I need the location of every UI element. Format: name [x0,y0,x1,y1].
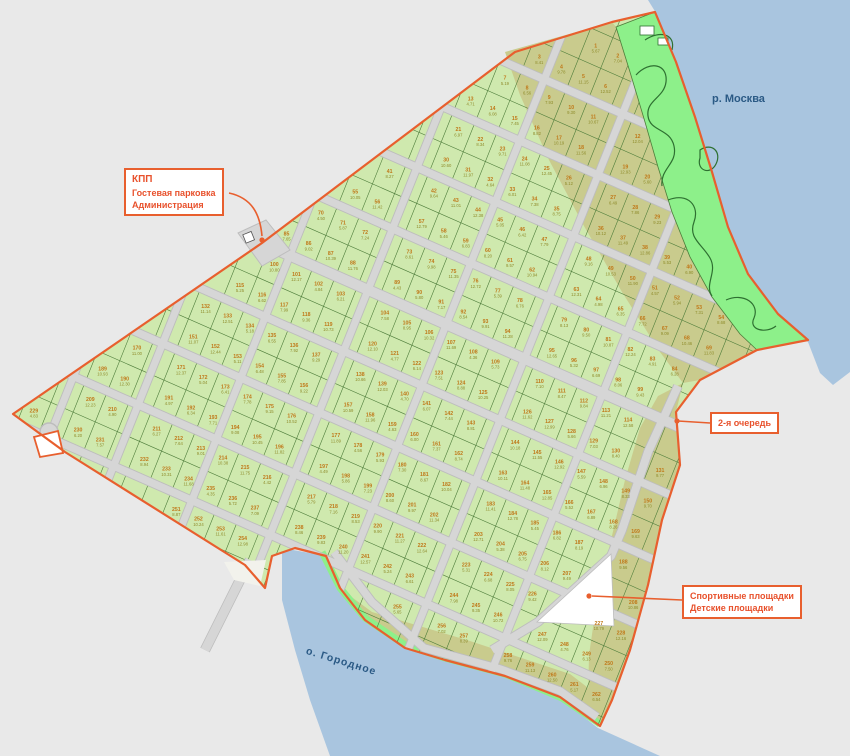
plot-area: 7.09 [251,511,260,516]
plot-area: 8.67 [420,477,429,482]
plot-area: 7.98 [450,598,459,603]
plot-area: 10.31 [161,472,172,477]
plot-area: 9.30 [567,110,576,115]
plot-area: 10.60 [441,163,452,168]
plot-area: 10.32 [424,335,435,340]
plot-area: 6.61 [406,579,415,584]
plot-area: 9.42 [528,597,537,602]
plot-area: 6.89 [587,515,596,520]
plot-area: 4.57 [651,291,660,296]
plot-area: 8.75 [553,212,562,217]
plot-area: 4.76 [560,647,569,652]
plot-area: 8.20 [484,253,493,258]
plot-area: 9.50 [582,333,591,338]
callout-kpp-line1: КПП [132,173,216,187]
plot-area: 10.46 [682,341,693,346]
plot-area: 6.49 [609,200,618,205]
plot-area: 9.29 [312,358,321,363]
plot-area: 7.64 [175,441,184,446]
plot-area: 6.42 [518,232,527,237]
plot-area: 5.04 [199,380,208,385]
plot-area: 9.71 [498,152,507,157]
plot-area: 5.38 [496,547,505,552]
plot-area: 7.71 [209,420,218,425]
plot-area: 8.94 [140,462,149,467]
plot-area: 7.79 [540,242,549,247]
plot-area: 4.83 [30,413,39,418]
plot-area: 10.38 [218,461,229,466]
plot-area: 9.16 [585,262,594,267]
plot-area: 11.42 [372,205,383,210]
plot-area: 11.68 [184,482,195,487]
plot-area: 5.32 [570,363,579,368]
callout-kpp-line2: Гостевая парковка [132,187,216,199]
callout-playgrounds: Спортивные площадки Детские площадки [682,585,802,619]
plot-area: 9.43 [636,392,645,397]
plot-area: 4.64 [486,182,495,187]
plot-area: 12.64 [417,548,428,553]
plot-area: 6.56 [523,90,532,95]
plot-area: 8.40 [612,454,621,459]
plot-area: 9.23 [653,220,662,225]
plot-area: 5.39 [494,294,503,299]
plot-area: 8.33 [622,494,631,499]
plot-area: 11.01 [451,203,462,208]
plot-area: 10.19 [554,141,565,146]
plot-area: 12.52 [600,89,611,94]
plot-area: 5.73 [491,365,500,370]
plot-area: 6.83 [462,244,471,249]
plot-area: 5.31 [462,568,471,573]
plot-area: 11.34 [429,518,440,523]
plot-area: 7.92 [290,348,299,353]
plot-area: 10.12 [596,231,607,236]
plot-area: 11.21 [601,413,612,418]
callout-phase2: 2-я очередь [710,412,779,434]
callout-playgrounds-line1: Спортивные площадки [690,590,794,602]
plot-area: 8.61 [405,255,414,260]
plot-area: 12.71 [473,537,484,542]
plot-area: 9.63 [631,534,640,539]
plot-area: 9.01 [197,451,206,456]
plot-area: 11.97 [463,173,474,178]
plot-area: 6.41 [221,390,230,395]
plot-area: 7.65 [282,237,291,242]
plot-area: 6.68 [484,577,493,582]
plot-area: 6.82 [553,536,562,541]
plot-area: 10.67 [588,120,599,125]
plot-area: 7.37 [432,447,441,452]
plot-area: 9.91 [481,324,490,329]
plot-area: 11.15 [578,79,589,84]
plot-area: 11.41 [486,506,497,511]
plot-area: 5.59 [577,474,586,479]
plot-area: 7.78 [243,399,252,404]
plot-area: 12.85 [542,495,553,500]
plot-area: 11.90 [628,281,639,286]
plot-area: 9.84 [580,403,589,408]
plot-area: 4.90 [108,412,117,417]
plot-area: 7.51 [435,376,444,381]
plot-area: 6.48 [256,369,265,374]
plot-area: 8.87 [172,512,181,517]
plot-area: 7.03 [590,444,599,449]
plot-area: 4.56 [354,448,363,453]
plot-area: 6.75 [519,557,528,562]
park-structure [640,26,654,35]
plot-area: 12.10 [367,347,378,352]
plan-svg: 15.6727.0438.4149.78511.15612.5275.1986.… [0,0,850,756]
plot-area: 5.93 [376,458,385,463]
plot-area: 11.75 [240,470,251,475]
plot-area: 5.24 [384,569,393,574]
plot-area: 12.31 [571,292,582,297]
plot-area: 12.16 [616,636,627,641]
leader-dot-kpp [259,237,264,242]
plot-area: 9.90 [374,529,383,534]
plot-area: 12.09 [537,637,548,642]
plot-area: 5.19 [501,81,510,86]
plot-area: 10.53 [605,271,616,276]
plot-area: 12.57 [360,559,371,564]
plot-area: 4.77 [391,356,400,361]
plot-area: 10.24 [193,522,204,527]
site-plan-map: 15.6727.0438.4149.78511.15612.5275.1986.… [0,0,850,756]
plot-area: 9.77 [656,473,665,478]
plot-area: 12.23 [85,402,96,407]
plot-area: 5.72 [229,501,238,506]
plot-area: 11.27 [395,539,406,544]
plot-area: 12.17 [291,277,302,282]
plot-area: 4.42 [263,480,272,485]
plot-area: 11.14 [201,309,212,314]
plot-area: 12.24 [625,352,636,357]
plot-area: 12.03 [377,387,388,392]
plot-area: 11.07 [188,340,199,345]
plot-area: 6.14 [413,366,422,371]
plot-area: 10.79 [594,626,605,631]
plot-area: 8.68 [717,320,726,325]
plot-area: 10.93 [97,372,108,377]
plot-area: 10.05 [350,195,361,200]
plot-area: 4.36 [469,355,478,360]
plot-area: 9.57 [506,263,515,268]
plot-area: 5.25 [236,288,245,293]
plot-area: 12.30 [119,381,130,386]
plot-area: 10.80 [269,267,280,272]
plot-area: 8.06 [614,383,623,388]
leader-dot-phase2 [674,418,679,423]
plot-area: 8.41 [535,60,544,65]
plot-area: 8.60 [386,498,395,503]
plot-area: 6.20 [74,433,83,438]
plot-area: 12.72 [470,284,481,289]
plot-area: 9.49 [563,576,572,581]
river-label: р. Москва [712,93,765,105]
callout-kpp: КПП Гостевая парковка Администрация [124,168,224,216]
plot-area: 5.65 [393,609,402,614]
plot-area: 9.64 [430,193,439,198]
plot-area: 8.47 [558,394,567,399]
plot-area: 7.50 [605,666,614,671]
plot-area: 11.83 [704,351,715,356]
plot-area: 7.86 [631,210,640,215]
plot-area: 8.19 [575,545,584,550]
plot-area: 12.79 [416,224,427,229]
plot-area: 6.62 [258,298,267,303]
plot-area: 5.66 [568,434,577,439]
plot-area: 12.93 [620,170,631,175]
plot-area: 5.18 [246,329,255,334]
plot-area: 12.37 [176,370,187,375]
plot-area: 5.46 [440,234,449,239]
plot-area: 5.53 [663,260,672,265]
plot-area: 10.25 [478,395,489,400]
plot-area: 6.08 [489,111,498,116]
plot-area: 9.70 [644,504,653,509]
plot-area: 4.71 [467,102,476,107]
plot-area: 11.69 [446,345,457,350]
plot-area: 10.87 [603,342,614,347]
plot-area: 12.04 [632,139,643,144]
callout-phase2-label: 2-я очередь [718,417,771,429]
plot-area: 7.44 [445,416,454,421]
plot-area: 6.27 [153,432,162,437]
plot-area: 11.89 [331,438,342,443]
plot-area: 7.10 [536,384,545,389]
plot-area: 8.54 [459,315,468,320]
plot-area: 7.38 [530,202,539,207]
plot-area: 10.94 [527,273,538,278]
plot-area: 6.28 [671,371,680,376]
plot-area: 8.05 [506,587,515,592]
plot-area: 4.97 [165,401,174,406]
plot-area: 11.13 [525,668,536,673]
plot-area: 6.07 [423,406,432,411]
plot-area: 5.45 [531,526,540,531]
plot-area: 10.45 [252,440,263,445]
plot-area: 12.86 [640,250,651,255]
plot-area: 9.76 [504,658,513,663]
plot-area: 12.99 [544,424,555,429]
plot-area: 12.65 [547,353,558,358]
plot-area: 12.58 [623,423,634,428]
plot-area: 7.04 [614,58,623,63]
plot-area: 5.86 [342,479,351,484]
plot-area: 5.87 [339,226,348,231]
plot-area: 9.22 [300,388,309,393]
plot-area: 7.30 [398,468,407,473]
plot-area: 4.43 [393,285,402,290]
plot-area: 6.90 [685,270,694,275]
plot-area: 10.73 [323,327,334,332]
plot-area: 11.62 [522,415,533,420]
leader-dot-playgrounds [586,593,591,598]
plot-area: 8.39 [460,639,469,644]
plot-area: 7.58 [381,316,390,321]
plot-area: 9.98 [427,264,436,269]
plot-area: 4.91 [648,362,657,367]
plot-area: 8.34 [476,142,485,147]
plot-area: 10.11 [498,476,509,481]
plot-area: 5.52 [565,505,574,510]
plot-area: 6.55 [268,338,277,343]
callout-playgrounds-line2: Детские площадки [690,602,794,614]
plot-area: 5.80 [415,295,424,300]
plot-area: 8.81 [467,426,476,431]
plot-area: 6.97 [454,132,463,137]
plot-area: 11.00 [132,351,143,356]
plot-area: 9.35 [472,608,481,613]
plot-area: 8.95 [403,326,412,331]
callout-kpp-line3: Администрация [132,199,216,211]
plot-area: 5.11 [234,359,243,364]
plot-area: 8.46 [295,530,304,535]
plot-area: 12.78 [508,516,519,521]
plot-area: 6.69 [592,373,601,378]
plot-area: 12.44 [210,349,221,354]
plot-area: 6.96 [599,484,608,489]
plot-area: 4.35 [207,491,216,496]
plot-area: 10.86 [628,605,639,610]
plot-area: 11.35 [448,274,459,279]
plot-area: 7.23 [364,488,373,493]
plot-area: 9.56 [619,565,628,570]
plot-area: 11.61 [215,532,226,537]
plot-area: 7.85 [278,379,287,384]
plot-area: 7.31 [695,310,704,315]
plot-area: 11.96 [365,418,376,423]
plot-area: 8.26 [609,525,618,530]
plot-area: 5.67 [592,49,601,54]
plot-area: 11.76 [348,266,359,271]
plot-area: 9.08 [231,430,240,435]
plot-area: 5.79 [307,500,316,505]
plot-area: 5.60 [643,179,652,184]
plot-area: 9.36 [302,317,311,322]
plot-area: 11.28 [503,334,514,339]
plot-area: 9.15 [265,409,274,414]
plot-area: 6.21 [337,296,346,301]
plot-area: 6.54 [592,697,601,702]
plot-area: 5.94 [673,300,682,305]
plot-area: 5.17 [570,687,579,692]
plot-area: 7.99 [280,308,289,313]
plot-area: 5.12 [565,181,574,186]
plot-area: 12.45 [542,171,553,176]
plot-area: 12.51 [222,319,233,324]
plot-area: 10.04 [441,487,452,492]
plot-area: 12.92 [554,465,565,470]
plot-area: 10.39 [326,256,337,261]
plot-area: 10.72 [493,618,504,623]
plot-area: 8.53 [352,519,361,524]
plot-area: 7.93 [545,100,554,105]
plot-area: 9.97 [408,508,417,513]
plot-area: 4.84 [314,287,323,292]
plot-area: 8.12 [541,566,550,571]
plot-area: 8.27 [386,174,395,179]
plot-area: 6.76 [516,303,525,308]
plot-area: 6.00 [410,437,419,442]
plot-area: 5.05 [496,223,505,228]
plot-area: 4.50 [317,216,326,221]
plot-area: 9.78 [557,70,566,75]
plot-area: 8.88 [457,385,466,390]
plot-area: 6.01 [508,192,517,197]
plot-area: 9.09 [661,331,670,336]
plot-area: 12.38 [473,213,484,218]
plot-area: 7.17 [437,305,446,310]
plot-area: 4.49 [320,469,329,474]
plot-area: 9.83 [317,540,326,545]
plot-area: 11.49 [618,241,629,246]
plot-area: 12.50 [547,678,558,683]
plot-area: 7.57 [96,443,105,448]
plot-area: 7.24 [361,235,370,240]
plot-area: 7.72 [639,321,648,326]
plot-area: 6.13 [582,657,591,662]
plot-area: 4.98 [594,302,603,307]
plot-area: 11.20 [338,550,349,555]
plot-area: 7.45 [511,121,520,126]
plot-area: 4.70 [401,397,410,402]
plot-area: 8.74 [455,456,464,461]
plot-area: 12.98 [237,541,248,546]
plot-area: 11.48 [520,486,531,491]
plot-area: 6.34 [187,411,196,416]
plot-area: 8.13 [560,323,569,328]
plot-area: 11.82 [274,450,285,455]
plot-area: 4.63 [388,427,397,432]
plot-area: 7.02 [438,629,447,634]
plot-area: 11.56 [576,150,587,155]
plot-area: 8.82 [533,131,542,136]
plot-area: 10.52 [286,419,297,424]
plot-area: 7.16 [329,509,338,514]
plot-area: 10.59 [343,408,354,413]
plot-area: 6.35 [617,312,626,317]
plot-area: 9.02 [305,246,314,251]
plot-area: 10.66 [355,377,366,382]
plot-area: 11.55 [532,455,543,460]
plot-area: 10.18 [510,445,521,450]
plot-area: 11.08 [520,161,531,166]
